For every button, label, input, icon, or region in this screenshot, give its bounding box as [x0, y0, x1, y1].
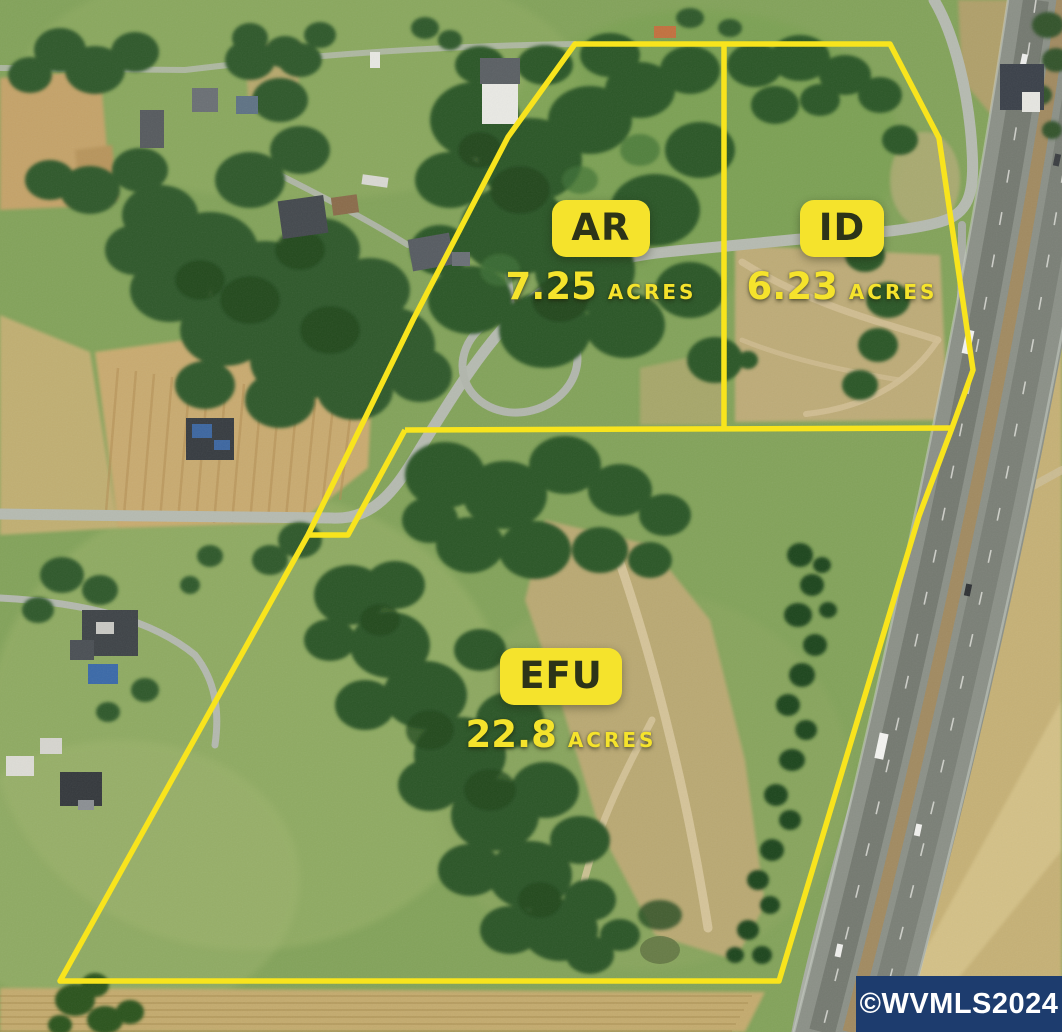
- boundary-outer: [60, 44, 973, 981]
- parcel-map: AR 7.25 ACRES ID 6.23 ACRES EFU 22.8 ACR…: [0, 0, 1062, 1032]
- parcel-boundaries: [0, 0, 1062, 1032]
- watermark-text: ©WVMLS2024: [860, 988, 1059, 1021]
- boundary-ar-id-bottom: [405, 428, 952, 430]
- boundary-efu-notch: [308, 430, 405, 535]
- watermark-badge: ©WVMLS2024: [856, 976, 1062, 1032]
